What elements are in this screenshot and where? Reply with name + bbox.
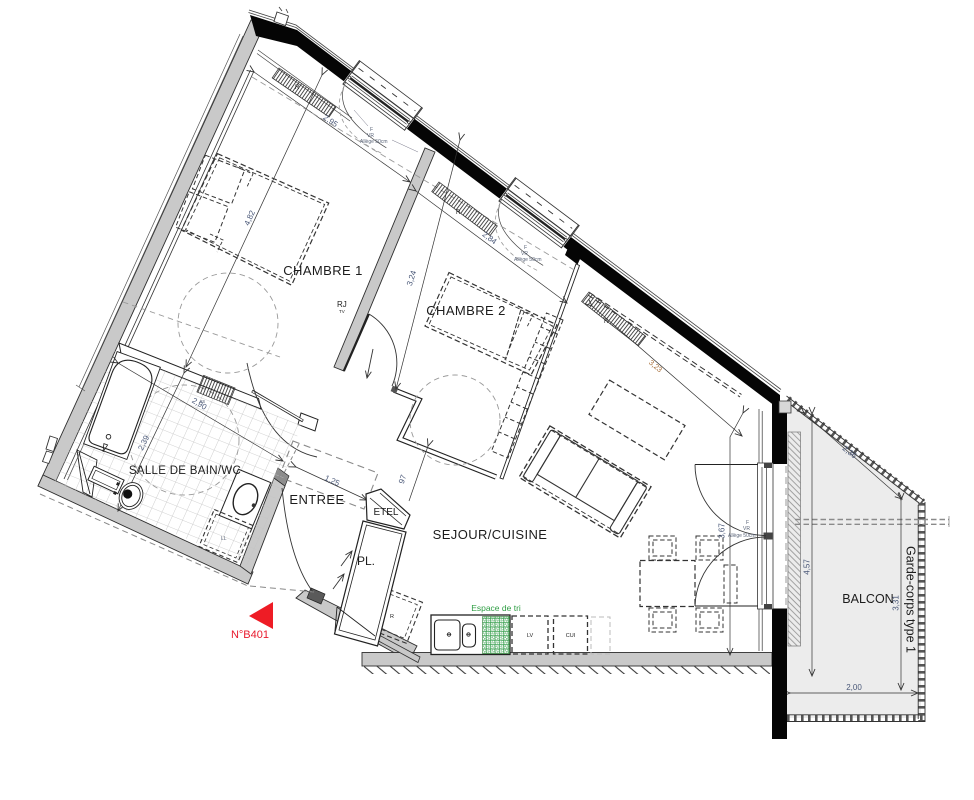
svg-text:CHAMBRE 1: CHAMBRE 1 <box>283 263 362 278</box>
svg-text:Allège 50cm: Allège 50cm <box>360 139 388 145</box>
svg-text:R: R <box>295 85 300 91</box>
svg-text:R: R <box>456 210 461 216</box>
svg-text:LL: LL <box>221 536 227 542</box>
svg-text:RJ: RJ <box>337 300 347 309</box>
svg-text:2,00: 2,00 <box>846 683 862 692</box>
svg-text:3,24: 3,24 <box>405 269 419 287</box>
svg-text:TV: TV <box>339 309 345 314</box>
svg-text:2,84: 2,84 <box>481 230 499 247</box>
svg-text:ETEL: ETEL <box>373 507 398 518</box>
svg-text:LV: LV <box>527 633 534 639</box>
svg-text:3,23: 3,23 <box>647 358 664 374</box>
svg-text:Allège 50cm: Allège 50cm <box>728 533 756 539</box>
svg-text:SEJOUR/CUISINE: SEJOUR/CUISINE <box>433 527 548 542</box>
svg-text:SALLE DE BAIN/WC: SALLE DE BAIN/WC <box>129 465 241 477</box>
svg-text:3,67: 3,67 <box>718 523 727 539</box>
svg-text:R: R <box>390 614 394 620</box>
svg-text:ENTREE: ENTREE <box>289 492 344 507</box>
svg-text:4,82: 4,82 <box>242 209 257 227</box>
svg-text:4,57: 4,57 <box>803 559 812 575</box>
svg-text:CHAMBRE 2: CHAMBRE 2 <box>426 303 505 318</box>
svg-text:Espace de tri: Espace de tri <box>471 603 521 613</box>
svg-text:2,95: 2,95 <box>321 113 339 130</box>
svg-text:VR: VR <box>743 526 750 532</box>
svg-text:Garde-corps type 1: Garde-corps type 1 <box>904 546 918 653</box>
svg-text:N°B401: N°B401 <box>231 629 269 641</box>
svg-text:1,25: 1,25 <box>323 473 341 488</box>
svg-text:BALCON: BALCON <box>842 592 893 606</box>
svg-text:97: 97 <box>397 473 408 485</box>
svg-text:CUI: CUI <box>566 633 576 639</box>
svg-text:PL.: PL. <box>357 554 375 568</box>
svg-text:Allège 50cm: Allège 50cm <box>514 257 542 263</box>
